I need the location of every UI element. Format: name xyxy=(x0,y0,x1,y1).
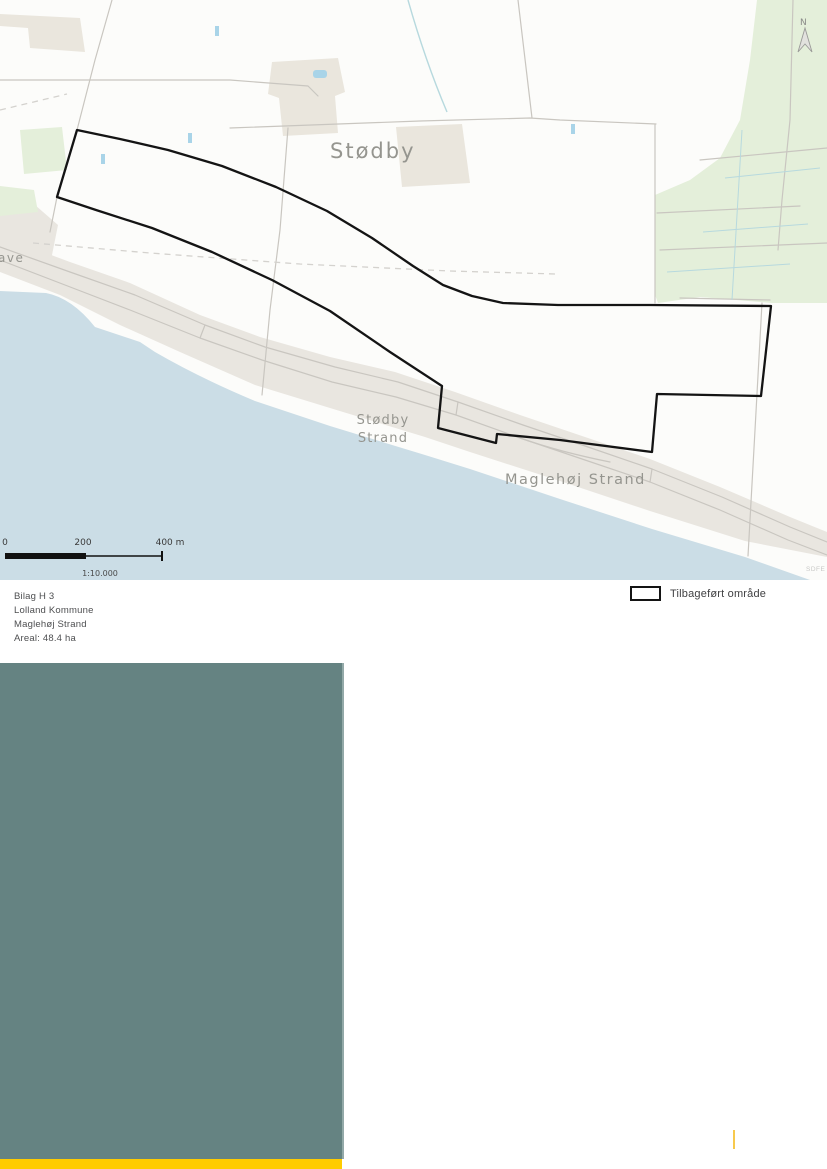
footer-accent-bar xyxy=(0,1159,342,1169)
page-edge-mark xyxy=(733,1130,735,1149)
attribution-label: SDFE xyxy=(806,566,826,573)
town-label: Stødby xyxy=(330,139,416,163)
caption-municipality: Lolland Kommune xyxy=(14,604,94,618)
shore-settlement-label-line2: Strand xyxy=(358,431,408,446)
caption-bilag: Bilag H 3 xyxy=(14,590,94,604)
caption-place: Maglehøj Strand xyxy=(14,618,94,632)
location-map: N Stødby Stødby Strand Maglehøj Strand a… xyxy=(0,0,827,580)
scale-tick-400: 400 m xyxy=(156,538,185,548)
restored-area-swatch xyxy=(630,586,661,601)
map-legend: Tilbageført område xyxy=(630,586,766,601)
vegetation-patch xyxy=(20,127,67,174)
vegetation-patch xyxy=(0,186,38,216)
shore-settlement-label-line1: Stødby xyxy=(357,413,410,428)
shore-settlement2-label: Maglehøj Strand xyxy=(505,472,646,488)
left-edge-label-fragment: ave xyxy=(0,251,24,265)
scale-tick-200: 200 xyxy=(74,538,91,548)
restored-area-label: Tilbageført område xyxy=(670,588,766,600)
caption-area: Areal: 48.4 ha xyxy=(14,632,94,646)
scale-ratio: 1:10.000 xyxy=(82,569,118,578)
scale-tick-0: 0 xyxy=(2,538,8,548)
map-caption: Bilag H 3 Lolland Kommune Maglehøj Stran… xyxy=(14,590,94,646)
document-page: N Stødby Stødby Strand Maglehøj Strand a… xyxy=(0,0,827,1169)
svg-text:N: N xyxy=(800,18,807,28)
photo-placeholder-panel xyxy=(0,663,344,1159)
